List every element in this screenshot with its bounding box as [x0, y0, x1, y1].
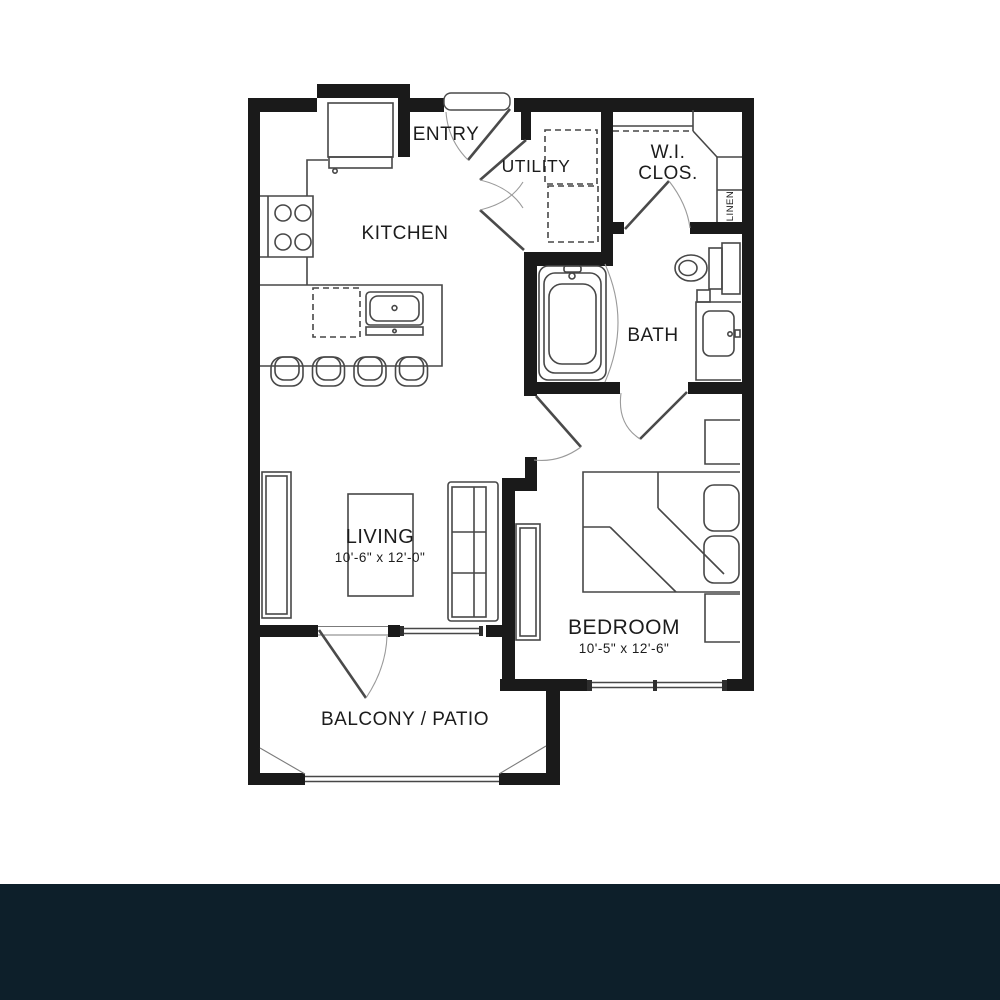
dresser	[516, 524, 540, 640]
balcony-label: BALCONY / PATIO	[321, 709, 489, 730]
toilet	[675, 243, 740, 294]
kitchen-island	[260, 285, 442, 386]
walkin-closet-label-line1: W.I.	[651, 142, 686, 163]
bath-door	[620, 392, 687, 439]
floor-plan-page: ENTRY KITCHEN UTILITY W.I. CLOS. LINEN B…	[0, 0, 1000, 1000]
stove	[260, 196, 313, 257]
nightstand-top	[705, 420, 740, 464]
kitchen-label: KITCHEN	[362, 223, 449, 244]
bedroom-label: BEDROOM	[568, 616, 680, 639]
bedroom-door	[534, 396, 581, 460]
walkin-closet-label-line2: CLOS.	[638, 163, 698, 184]
dishwasher	[313, 288, 360, 337]
bar-stools	[271, 357, 428, 386]
balcony-door	[318, 627, 388, 699]
kitchen-counter	[307, 160, 328, 285]
bed	[583, 472, 740, 592]
bedroom-window	[587, 680, 727, 691]
washer-dryer	[545, 130, 598, 242]
room-labels: ENTRY KITCHEN UTILITY W.I. CLOS. LINEN B…	[321, 124, 736, 730]
living-window	[400, 626, 483, 636]
bath-vanity	[696, 290, 741, 380]
island-sink	[366, 292, 423, 335]
living-dimensions: 10'-6" x 12'-0"	[335, 550, 426, 565]
bathtub	[539, 264, 618, 382]
sofa	[448, 482, 498, 621]
bath-label: BATH	[627, 325, 678, 346]
promo-banner: $ Right Price Promise	[0, 884, 1000, 1000]
floor-plan-drawing: ENTRY KITCHEN UTILITY W.I. CLOS. LINEN B…	[0, 0, 1000, 1000]
shower-curtain	[605, 264, 618, 382]
living-label: LIVING	[346, 526, 415, 548]
bedroom-dimensions: 10'-5" x 12'-6"	[579, 641, 670, 656]
media-console	[262, 472, 291, 618]
entry-label: ENTRY	[413, 124, 480, 145]
closet-door	[625, 181, 690, 229]
utility-label: UTILITY	[502, 156, 571, 176]
pillow	[704, 485, 739, 531]
linen-label: LINEN	[725, 191, 736, 221]
walls	[248, 84, 754, 785]
refrigerator	[328, 103, 393, 173]
nightstand-bottom	[705, 594, 740, 642]
